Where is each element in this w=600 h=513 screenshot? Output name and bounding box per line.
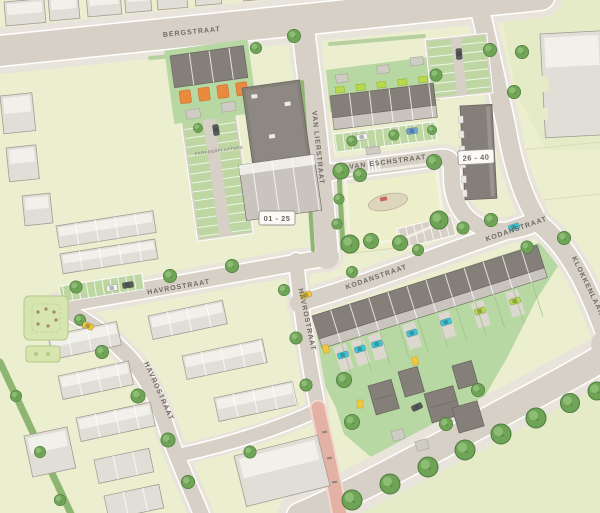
tree-icon xyxy=(300,379,312,391)
tree-icon xyxy=(418,457,438,477)
tree-icon xyxy=(412,244,423,255)
tree-icon xyxy=(244,446,256,458)
tree-icon xyxy=(278,284,289,295)
tree-icon xyxy=(95,345,108,358)
tree-icon xyxy=(347,136,357,146)
tree-icon xyxy=(439,417,452,430)
tree-icon xyxy=(561,394,580,413)
car-icon xyxy=(212,124,219,136)
lime-accent xyxy=(335,86,345,93)
tree-icon xyxy=(34,446,45,457)
tree-icon xyxy=(380,474,400,494)
tree-icon xyxy=(225,259,238,272)
tree-icon xyxy=(430,211,448,229)
tree-icon xyxy=(163,269,176,282)
lime-accent xyxy=(418,76,428,83)
tree-icon xyxy=(290,332,302,344)
tree-icon xyxy=(457,222,469,234)
lime-accent xyxy=(398,79,408,86)
orange-carport xyxy=(179,90,192,104)
lime-accent xyxy=(356,84,366,91)
tree-icon xyxy=(161,433,175,447)
tree-icon xyxy=(526,408,546,428)
car-icon xyxy=(356,133,368,140)
tree-icon xyxy=(332,219,342,229)
tree-icon xyxy=(346,266,357,277)
tree-icon xyxy=(342,490,362,510)
tree-icon xyxy=(483,43,496,56)
tree-icon xyxy=(430,69,442,81)
tree-icon xyxy=(10,390,21,401)
tree-icon xyxy=(334,194,344,204)
tree-icon xyxy=(363,233,378,248)
tree-icon xyxy=(389,130,399,140)
tree-icon xyxy=(341,235,359,253)
tree-icon xyxy=(70,281,82,293)
car-icon xyxy=(456,48,463,59)
orange-carport xyxy=(198,87,211,101)
lime-accent xyxy=(377,81,387,88)
tree-icon xyxy=(336,372,351,387)
site-plan-map: 01 - 25 26 - 40 BERGSTRAAT VAN LIERSTRAA… xyxy=(0,0,600,513)
orange-carport xyxy=(217,84,230,98)
badge-label: 26 - 40 xyxy=(462,153,489,163)
tree-icon xyxy=(471,383,484,396)
site-plan-canvas: 01 - 25 26 - 40 BERGSTRAAT VAN LIERSTRAA… xyxy=(0,0,600,513)
tree-icon xyxy=(392,235,407,250)
tree-icon xyxy=(427,125,437,135)
tree-icon xyxy=(131,389,145,403)
tree-icon xyxy=(507,85,520,98)
tree-icon xyxy=(557,231,570,244)
tree-icon xyxy=(455,440,475,460)
tree-icon xyxy=(484,213,497,226)
building-badge-block-a: 01 - 25 xyxy=(259,211,295,225)
tree-icon xyxy=(54,494,65,505)
tree-icon xyxy=(521,241,533,253)
yellow-bin-icon xyxy=(357,400,363,408)
building-badge-block-b: 26 - 40 xyxy=(458,149,495,165)
badge-label: 01 - 25 xyxy=(264,214,291,223)
tree-icon xyxy=(333,163,349,179)
tree-icon xyxy=(515,45,528,58)
tree-icon xyxy=(344,414,359,429)
tree-icon xyxy=(426,154,441,169)
tree-icon xyxy=(287,29,300,42)
tree-icon xyxy=(181,475,194,488)
tree-icon xyxy=(250,42,261,53)
tree-icon xyxy=(193,123,203,133)
tree-icon xyxy=(491,424,511,444)
block-orange-houses xyxy=(164,39,257,124)
tree-icon xyxy=(353,168,366,181)
car-icon xyxy=(406,127,418,134)
parking-lot-northeast xyxy=(425,33,493,99)
